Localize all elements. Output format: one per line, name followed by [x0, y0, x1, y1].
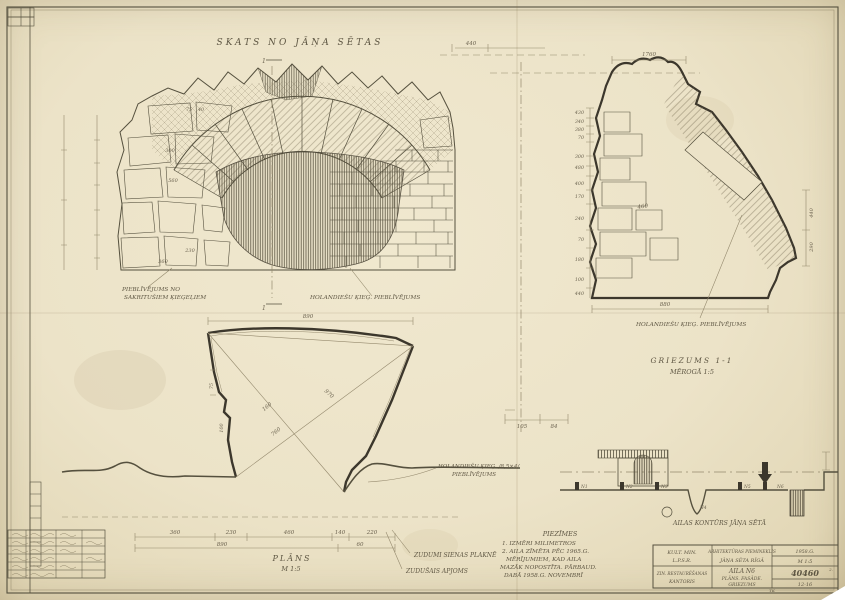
dim-label: 230	[225, 530, 237, 536]
drawing-number: 40460	[791, 568, 819, 578]
site-opening-labels: N1 N2 N3 N4 N5 N6	[580, 485, 784, 511]
plan-dimensions: 890 970 760 160 75 100 360 230 460 140 2…	[135, 314, 413, 552]
elevation-labels: PIEBLĪVĒJUMS NO SAKRITUŠIEM ĶIEĢEĻIEM HO…	[121, 268, 420, 301]
dim-label: 440	[809, 207, 815, 218]
dim-label: 890	[217, 542, 228, 548]
dim-label: 75	[186, 107, 192, 113]
paper-fold-vertical	[516, 0, 518, 600]
dim-label: 40	[197, 107, 204, 113]
dim-label: 70	[578, 237, 584, 243]
dim-label: 70	[578, 135, 584, 141]
paper-fold-horizontal	[0, 312, 845, 314]
opening-label: N6	[776, 485, 784, 490]
opening-label: N1	[580, 485, 588, 490]
dim-label: 480	[574, 165, 584, 171]
revision-table	[8, 530, 105, 578]
dim-label: 140	[335, 530, 346, 536]
section-stones	[596, 112, 678, 278]
dim-label: 970	[323, 389, 335, 401]
opening-label: N3	[660, 485, 668, 490]
drawing-canvas: SKATS NO JĀŅA SĒTAS 440 75 40 300 560 23…	[0, 0, 845, 600]
site-marker-circle	[662, 507, 672, 517]
site-caption: AILAS KONTŪRS JĀŅA SĒTĀ	[672, 520, 767, 527]
site-door-n6	[790, 490, 804, 516]
dim-label: 300	[165, 148, 175, 154]
dim-label: 100	[575, 277, 584, 283]
archive-code: 12-16	[798, 582, 813, 588]
plan-scale: M 1:5	[280, 565, 300, 573]
dim-label: 440	[574, 291, 584, 297]
notes-line: 1. IZMĒRI MILIMETROS	[502, 540, 576, 547]
initials: TK	[769, 588, 776, 593]
dim-label: 380	[575, 127, 584, 133]
object-name: PLĀNS. FASĀDE.	[721, 575, 763, 582]
dim-label: 105	[517, 424, 528, 430]
dim-label: 75	[209, 383, 215, 389]
opening-label: N4	[699, 506, 707, 511]
title-block: KULT. MIN. L.P.S.R. ZIN. RESTAURĒŠANAS K…	[653, 545, 838, 593]
notes-line: MAZĀK NOPOSTĪTA. PĀRBAUD.	[499, 564, 597, 571]
org-name: KULT. MIN.	[666, 550, 697, 556]
plan-title: PLĀNS	[272, 554, 312, 563]
legend-label: ZUDUŠAIS APJOMS	[405, 567, 468, 575]
dim-label: 890	[303, 314, 314, 320]
infill-label: HOLANDIEŠU ĶIEĢ. PIEBLĪVĒJUMS	[635, 320, 746, 328]
infill-label: SAKRITUŠIEM ĶIEĢEĻIEM	[124, 293, 207, 301]
object-name: AILA N6	[728, 568, 755, 575]
infill-label: PIEBLĪVĒJUMS	[451, 471, 496, 478]
site-openings-marks	[575, 482, 767, 490]
dim-label: 84	[551, 424, 558, 430]
dim-label: 290	[809, 241, 815, 252]
monument-name: JĀŅA SĒTA RĪGĀ	[719, 557, 764, 564]
dim-label: 560	[168, 178, 178, 184]
section-scale: MĒROGĀ 1:5	[669, 367, 714, 376]
dim-label: 360	[170, 530, 181, 536]
dim-label: 100	[219, 423, 225, 432]
dim-label: 230	[184, 248, 195, 254]
org-name: L.P.S.R.	[671, 558, 691, 564]
section-view: 1760 430 340 380 70 300 480 400 170 240 …	[505, 52, 815, 432]
site-door-arch	[634, 455, 652, 484]
dim-label: 440	[465, 41, 477, 47]
study-arrow-icon	[758, 462, 772, 484]
dim-label: 180	[575, 257, 584, 263]
site-hatched-wall	[598, 450, 668, 458]
dim-label: 160	[261, 401, 273, 413]
plan-diagonals	[208, 333, 413, 492]
opening-label: N2	[625, 485, 633, 490]
infill-label: PIEBLĪVĒJUMS NO	[121, 286, 180, 293]
dim-label: 240	[574, 216, 584, 222]
dim-label: 300	[575, 154, 584, 160]
dim-label: 460	[283, 530, 295, 536]
cut-mark-label: 1	[262, 58, 266, 65]
sheet-number: 2.	[828, 567, 833, 572]
drawing-sheet: SKATS NO JĀŅA SĒTAS 440 75 40 300 560 23…	[0, 0, 845, 600]
dim-label: 400	[574, 181, 584, 187]
dim-label: 360	[158, 259, 168, 265]
dim-label: 340	[575, 119, 584, 125]
dim-label: 220	[366, 530, 378, 536]
scale-cell: M 1:5	[797, 559, 813, 565]
dim-label: 760	[270, 426, 282, 438]
dim-label: 430	[574, 110, 584, 116]
dim-label: 1760	[642, 52, 656, 58]
cut-mark-label: 1	[262, 305, 266, 312]
margin-table	[30, 482, 41, 566]
object-name: GRIEZUMS	[728, 582, 755, 588]
section-cut-reference: 105 84	[505, 62, 568, 432]
dim-label: 880	[660, 302, 671, 308]
site-plan-strip: N1 N2 N3 N4 N5 N6 AILAS KONTŪRS JĀŅA SĒT…	[560, 450, 838, 527]
scan-corner	[821, 586, 845, 600]
date-cell: 1958.G.	[796, 549, 815, 555]
elevation-title: SKATS NO JĀŅA SĒTAS	[217, 36, 384, 48]
notes-heading: PIEZĪMES	[542, 529, 578, 538]
section-title: GRIEZUMS 1-1	[651, 356, 734, 365]
opening-label: N5	[743, 485, 751, 490]
plan-fan-outline	[208, 328, 413, 492]
elevation-view: SKATS NO JĀŅA SĒTAS 440 75 40 300 560 23…	[61, 36, 700, 312]
plan-fan-inner-line	[211, 331, 410, 437]
org-name: ZIN. RESTAURĒŠANAS	[656, 571, 708, 576]
org-name: KANTORIS	[668, 579, 695, 585]
infill-label: HOLANDIEŠU ĶIEĢ. /8,5×4/	[437, 462, 520, 470]
notes-line: 2. AILA ZĪMĒTA PĒC 1965.G.	[501, 548, 589, 555]
section-labels: HOLANDIEŠU ĶIEĢ. PIEBLĪVĒJUMS GRIEZUMS 1…	[635, 215, 746, 376]
infill-label: HOLANDIEŠU ĶIEĢ. PIEBLĪVĒJUMS	[309, 293, 420, 301]
dim-label: 170	[575, 194, 584, 200]
dim-label: 60	[357, 542, 364, 548]
monument-name: ARHITEKTŪRAS PIEMINEKLIS	[707, 549, 776, 554]
legend-label: ZUDUMI SIENAS PLAKNĒ	[413, 552, 497, 559]
